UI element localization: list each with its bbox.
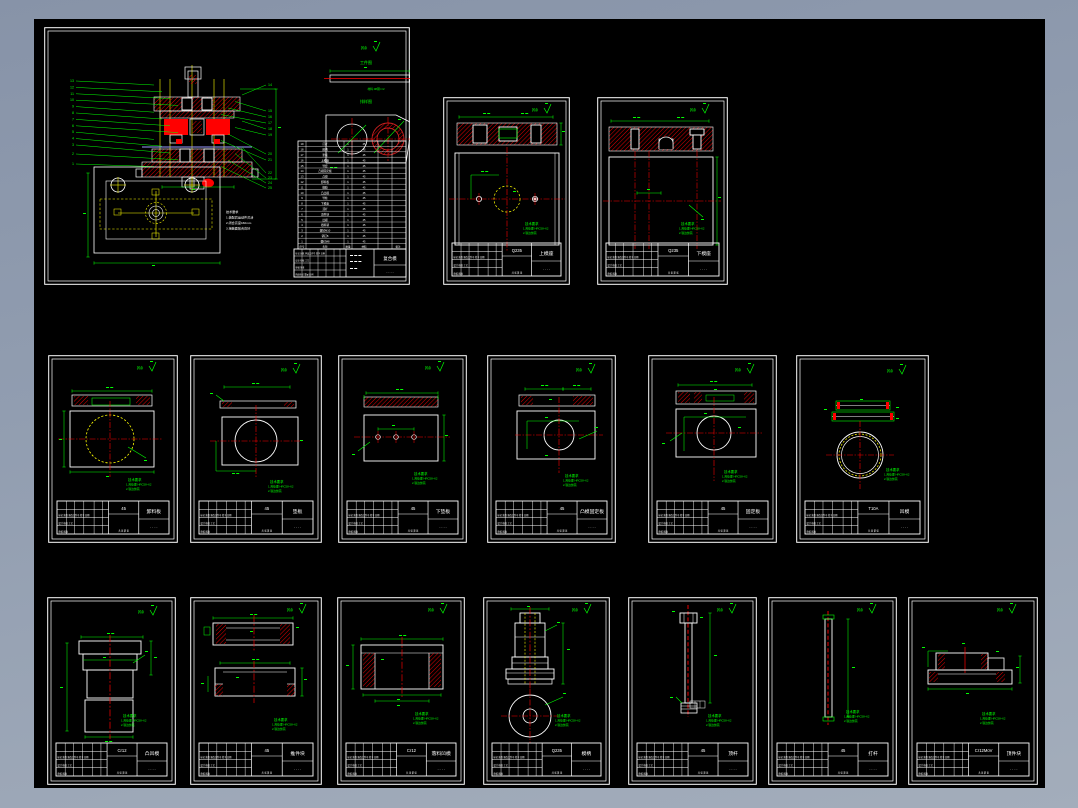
bom-header: 备注 xyxy=(395,245,401,249)
drawing-sheet-assembly: 1312111098765432114151617181920212223242… xyxy=(44,27,410,285)
bom-qty: 1 xyxy=(347,207,349,211)
roughness-label: 其余 xyxy=(735,367,742,372)
drawing-sheet-upper-die-seat: 技术要求1.热处理 HRC58~622.锐边倒钝其余标记 处数 更改文件号 签字… xyxy=(443,97,570,285)
title-block: 标记 处数 更改文件号 签字 日期设计 校核 工艺审核 批准Cr12MoV共 张… xyxy=(917,743,1029,776)
sheet-note: 共 张 第 张 xyxy=(118,529,129,533)
bom-no: 2 xyxy=(301,234,303,238)
balloon-number: 17 xyxy=(268,121,272,125)
notes-line: 1.热处理 HRC58~62 xyxy=(844,715,870,719)
sheet-content: 技术要求1.热处理 HRC58~622.锐边倒钝其余标记 处数 更改文件号 签字… xyxy=(484,598,610,785)
part-name-label: 落料凹模 xyxy=(432,750,451,757)
assembly-section-view xyxy=(136,65,281,190)
roughness-icon: 其余 xyxy=(361,41,380,51)
notes-line: 2.锐边倒钝 xyxy=(413,721,427,725)
bom-no: 8 xyxy=(301,202,303,206)
roughness-label: 其余 xyxy=(425,365,432,370)
titleblock-row: 审核 批准 xyxy=(494,771,504,775)
part-name-label: 下模座 xyxy=(697,250,712,257)
notes-line: 1.热处理 HRC58~62 xyxy=(555,719,581,723)
titleblock-row: 审核 批准 xyxy=(498,529,508,533)
section-view xyxy=(676,381,756,404)
bom-no: 3 xyxy=(301,229,303,233)
drawing-sheet-knockout-rod: 技术要求1.热处理 HRC58~622.锐边倒钝其余标记 处数 更改文件号 签字… xyxy=(768,597,897,785)
notes-line: 2.锐边倒钝 xyxy=(884,477,898,481)
notes-line: 1.热处理 HRC58~62 xyxy=(413,717,439,721)
sheet-content: 1312111098765432114151617181920212223242… xyxy=(45,28,410,285)
titleblock-row: 审核 批准 xyxy=(296,266,305,270)
bom-no: 15 xyxy=(301,164,304,168)
drawing-number-dots: · · · · xyxy=(439,526,446,530)
notes-line: 1.热处理 HRC58~62 xyxy=(121,719,147,723)
rod-view xyxy=(670,605,717,717)
bom-no: 1 xyxy=(301,239,303,243)
plan-view xyxy=(662,397,762,481)
balloon-number: 23 xyxy=(268,176,272,180)
titleblock-row: 审核 批准 xyxy=(59,529,69,533)
part-name-label: 复合模 xyxy=(383,255,397,262)
roughness-label: 其余 xyxy=(887,368,894,373)
bom-name: 螺钉M10 xyxy=(320,229,331,233)
roughness-label: 其余 xyxy=(572,607,579,612)
drawing-number-dots: · · · · xyxy=(294,526,301,530)
bom-no: 18 xyxy=(301,148,304,152)
part-name-label: 凸模固定板 xyxy=(580,508,604,515)
tech-notes: 技术要求1.热处理 HRC58~622.锐边倒钝 xyxy=(722,469,748,483)
balloon-number: 11 xyxy=(70,92,74,96)
titleblock-row: 设计 校核 工艺 xyxy=(608,263,623,267)
bom-qty: 1 xyxy=(347,164,349,168)
plan-view xyxy=(58,401,162,477)
section-view xyxy=(364,389,438,407)
tech-notes: 技术要求1.热处理 HRC58~622.锐边倒钝 xyxy=(413,711,439,725)
bom-table: 19打杆14518模柄14517垫板14516上模座14515导套14514凸模… xyxy=(298,141,406,249)
bom-no: 17 xyxy=(301,153,304,157)
plan-view xyxy=(603,151,721,249)
balloon-number: 21 xyxy=(268,158,272,162)
drawing-sheet-ejector-rod: 技术要求1.热处理 HRC58~622.锐边倒钝其余标记 处数 更改文件号 签字… xyxy=(628,597,757,785)
notes-title: 技术要求 xyxy=(123,713,137,718)
drawing-number-dots: · · · · xyxy=(700,268,707,272)
balloon-number: 1 xyxy=(72,162,74,166)
titleblock-row: 标记 处数 更改文件号 签字 日期 xyxy=(454,255,486,259)
bom-material: 45 xyxy=(363,197,366,200)
sheet-note: 共 张 第 张 xyxy=(978,771,989,775)
bom-qty: 1 xyxy=(347,239,349,243)
sheet-content: 技术要求1.热处理 HRC58~622.锐边倒钝其余标记 处数 更改文件号 签字… xyxy=(649,356,777,543)
part-name-label: 凹模 xyxy=(900,508,910,515)
notes-line: 2.锐边倒钝 xyxy=(121,723,135,727)
notes-line: 1.热处理 HRC58~62 xyxy=(706,719,732,723)
balloon-number: 2 xyxy=(72,152,74,156)
bom-name: 橡胶 xyxy=(322,185,328,189)
section-view xyxy=(72,387,152,406)
roughness-label: 其余 xyxy=(361,45,368,50)
sheet-content: 技术要求1.热处理 HRC58~622.锐边倒钝其余标记 处数 更改文件号 签字… xyxy=(909,598,1038,785)
balloon-number: 5 xyxy=(72,130,74,134)
roughness-icon: 其余 xyxy=(887,364,906,374)
drawing-sheet-die-ring: 技术要求1.热处理 HRC58~622.锐边倒钝其余标记 处数 更改文件号 签字… xyxy=(796,355,929,543)
notes-title: 技术要求 xyxy=(982,711,996,716)
plan-view xyxy=(83,167,220,266)
material-label: 45 xyxy=(841,748,846,753)
part-name-label: 凸凹模 xyxy=(145,750,160,757)
material-label: T10A xyxy=(868,506,878,511)
notes-line: 1.热处理 HRC58~62 xyxy=(980,717,1006,721)
roughness-label: 其余 xyxy=(137,365,144,370)
roughness-icon: 其余 xyxy=(425,361,444,371)
title-block: 标记 处数 更改文件号 签字 日期设计 校核 工艺审核 批准45共 张 第 张凸… xyxy=(496,501,607,534)
notes-line: 2.锐边倒钝 xyxy=(555,723,569,727)
notes-title: 技术要求 xyxy=(708,713,722,718)
roughness-label: 其余 xyxy=(690,107,697,112)
drawing-sheet-punch-fixing-plate: 技术要求1.热处理 HRC58~622.锐边倒钝其余标记 处数 更改文件号 签字… xyxy=(487,355,616,543)
part-name-label: 下垫板 xyxy=(436,508,451,515)
material-label: Q235 xyxy=(512,248,523,253)
roughness-label: 其余 xyxy=(717,607,724,612)
notes-title: 技术要求 xyxy=(846,709,860,714)
notes-title: 技术要求 xyxy=(270,479,284,484)
roughness-icon: 其余 xyxy=(137,361,156,371)
tech-notes: 技术要求1.热处理 HRC58~622.锐边倒钝 xyxy=(844,709,870,723)
bom-qty: 1 xyxy=(347,202,349,206)
bom-no: 10 xyxy=(301,191,304,195)
balloon-number: 6 xyxy=(72,124,74,128)
bom-no: 5 xyxy=(301,218,303,222)
notes-line: 2.锐边倒钝 xyxy=(126,487,140,491)
plan-view xyxy=(352,415,450,461)
balloon-number: 12 xyxy=(70,85,74,89)
title-block: 标记 处数 更改文件号 签字 日期设计 校核 工艺审核 批准45共 张 第 张垫… xyxy=(199,501,313,534)
sheet-content: 技术要求1.热处理 HRC58~622.锐边倒钝其余标记 处数 更改文件号 签字… xyxy=(769,598,897,785)
titleblock-row: 标记 处数 更改文件号 签字 日期 xyxy=(201,755,233,759)
drawing-sheet-ejector-block: 技术要求1.热处理 HRC58~622.锐边倒钝其余标记 处数 更改文件号 签字… xyxy=(190,597,322,785)
bom-qty: 1 xyxy=(347,196,349,200)
notes-line: 2.锐边倒钝 xyxy=(268,489,282,493)
balloon-number: 16 xyxy=(268,115,272,119)
titleblock-row: 阶段标记 重量 比例 xyxy=(296,273,314,277)
bom-name: 凸模 xyxy=(322,175,328,179)
title-block: 标记 处数 更改文件号 签字 日期设计 校核 工艺审核 批准Cr12共 张 第 … xyxy=(56,743,167,776)
titleblock-row: 审核 批准 xyxy=(201,529,211,533)
lower-section-view xyxy=(201,659,307,703)
drawing-sheet-upper-pad-plate: 技术要求1.热处理 HRC58~622.锐边倒钝其余标记 处数 更改文件号 签字… xyxy=(190,355,322,543)
sheet-content: 技术要求1.热处理 HRC58~622.锐边倒钝其余标记 处数 更改文件号 签字… xyxy=(629,598,757,785)
bom-material: 45 xyxy=(363,159,366,162)
tech-notes: 技术要求1.热处理 HRC58~622.锐边倒钝 xyxy=(412,471,438,485)
notes-title: 技术要求 xyxy=(274,717,288,722)
balloon-number: 7 xyxy=(72,117,74,121)
bom-material: 45 xyxy=(363,208,366,211)
bom-name: 凸模固定板 xyxy=(318,169,332,173)
sheet-note: 共 张 第 张 xyxy=(262,771,273,775)
bom-name: 下模座 xyxy=(321,202,329,206)
notes-line: 2.锐边倒钝 xyxy=(412,481,426,485)
bom-name: 导套 xyxy=(322,164,328,168)
bom-name: 卸料板 xyxy=(321,180,329,184)
bom-name: 销钉8 xyxy=(322,234,329,238)
balloon-number: 4 xyxy=(72,137,74,141)
drawing-number-dots: · · · · xyxy=(386,271,393,275)
notes-line: 2.锐边倒钝 xyxy=(272,727,286,731)
notes-title: 技术要求 xyxy=(415,711,429,716)
notes-line: 2.锐边倒钝 xyxy=(706,723,720,727)
notes-line: 1.热处理 HRC58~62 xyxy=(722,475,748,479)
part-name-label: 上模座 xyxy=(539,250,554,257)
drawing-number-dots: · · · · xyxy=(588,526,595,530)
assembly-tech-notes: 技术要求1.装配后运动件灵活2.闭合高度160mm3.接触面贴合良好 xyxy=(226,209,253,231)
section-view xyxy=(210,383,296,408)
drawing-number-dots: · · · · xyxy=(869,768,876,772)
drawing-sheet-die-shank: 技术要求1.热处理 HRC58~622.锐边倒钝其余标记 处数 更改文件号 签字… xyxy=(483,597,610,785)
notes-title: 技术要求 xyxy=(886,467,900,472)
balloon-number: 19 xyxy=(268,133,272,137)
bom-header: 名称 xyxy=(322,245,328,249)
bom-qty: 1 xyxy=(347,175,349,179)
shank-profile-view xyxy=(506,606,570,689)
title-block: 标记 处数 更改文件号 签字 日期设计 校核 工艺审核 批准45共 张 第 张顶… xyxy=(637,743,748,776)
material-label: 45 xyxy=(264,506,269,511)
title-block: 标记 处数 更改文件号 签字 日期设计 校核 工艺审核 批准Q235共 张 第 … xyxy=(452,243,561,276)
drawing-sheet-locating-flange: 技术要求1.热处理 HRC58~622.锐边倒钝其余标记 处数 更改文件号 签字… xyxy=(908,597,1038,785)
bom-material: 45 xyxy=(363,186,366,189)
titleblock-row: 设计 校核 工艺 xyxy=(807,521,822,525)
notes-line: 1.热处理 HRC58~62 xyxy=(268,485,294,489)
bom-no: 4 xyxy=(301,223,303,227)
titleblock-row: 审核 批准 xyxy=(919,771,929,775)
bom-material: 45 xyxy=(363,224,366,227)
titleblock-row: 审核 批准 xyxy=(639,771,649,775)
roughness-icon: 其余 xyxy=(572,603,591,613)
bom-material: 45 xyxy=(363,170,366,173)
titleblock-row: 设计 校核 工艺 xyxy=(201,763,216,767)
bom-qty: 1 xyxy=(347,169,349,173)
drawing-number-dots: · · · · xyxy=(148,768,155,772)
sheet-content: 技术要求1.热处理 HRC58~622.锐边倒钝其余标记 处数 更改文件号 签字… xyxy=(338,598,465,785)
part-name-label: 卸料板 xyxy=(147,508,162,515)
cad-preview-stage: 1312111098765432114151617181920212223242… xyxy=(0,0,1078,808)
drawing-number-dots: · · · · xyxy=(583,768,590,772)
section-view xyxy=(519,385,595,406)
sheet-note: 共 张 第 张 xyxy=(718,529,729,533)
sheet-note: 共 张 第 张 xyxy=(868,529,879,533)
sheet-content: 技术要求1.热处理 HRC58~622.锐边倒钝其余标记 处数 更改文件号 签字… xyxy=(488,356,616,543)
roughness-label: 其余 xyxy=(997,607,1004,612)
titleblock-row: 审核 批准 xyxy=(659,529,669,533)
section-view xyxy=(824,399,899,421)
drawing-sheet-blanking-die: 技术要求1.热处理 HRC58~622.锐边倒钝其余标记 处数 更改文件号 签字… xyxy=(337,597,465,785)
sheet-note: 共 张 第 张 xyxy=(557,529,568,533)
titleblock-row: 标记 处数 更改文件号 签字 日期 xyxy=(807,513,839,517)
drawing-number-dots: · · · · xyxy=(901,526,908,530)
drawing-number-dots: · · · · xyxy=(1010,768,1017,772)
material-label: 45 xyxy=(121,506,126,511)
material-note: 材料:08钢 t=2 xyxy=(367,87,384,91)
notes-line: 2.锐边倒钝 xyxy=(523,231,537,235)
material-label: Q235 xyxy=(552,748,563,753)
bom-material: 45 xyxy=(363,154,366,157)
notes-line: 2.锐边倒钝 xyxy=(980,721,994,725)
bom-name: 上模座 xyxy=(321,158,329,162)
notes-line: 2.锐边倒钝 xyxy=(679,231,693,235)
bom-material: 45 xyxy=(363,165,366,168)
titleblock-row: 设计 校核 工艺 xyxy=(296,259,310,263)
roughness-label: 其余 xyxy=(576,367,583,372)
titleblock-row: 标记 处数 更改文件号 签字 日期 xyxy=(201,513,233,517)
sheet-content: 技术要求1.热处理 HRC58~622.锐边倒钝其余标记 处数 更改文件号 签字… xyxy=(339,356,467,543)
bom-no: 12 xyxy=(301,180,304,184)
tech-notes: 技术要求1.热处理 HRC58~622.锐边倒钝 xyxy=(126,477,152,491)
drawing-sheet-die-fixing-plate: 技术要求1.热处理 HRC58~622.锐边倒钝其余标记 处数 更改文件号 签字… xyxy=(648,355,777,543)
bom-name: 垫板 xyxy=(322,153,328,157)
model-space: 1312111098765432114151617181920212223242… xyxy=(34,19,1045,788)
title-block: 标记 处数 更改文件号 签字 日期设计 校核 工艺审核 批准45共 张 第 张推… xyxy=(199,743,313,776)
tech-notes: 技术要求1.热处理 HRC58~622.锐边倒钝 xyxy=(706,713,732,727)
bom-name: 模柄 xyxy=(322,148,328,152)
roughness-icon: 其余 xyxy=(997,603,1016,613)
roughness-label: 其余 xyxy=(428,607,435,612)
bom-qty: 1 xyxy=(347,148,349,152)
bom-material: 45 xyxy=(363,230,366,233)
tech-note-line: 2.闭合高度160mm xyxy=(226,220,252,225)
bom-name: 螺钉M8 xyxy=(320,239,330,243)
bom-qty: 1 xyxy=(347,158,349,162)
titleblock-row: 审核 批准 xyxy=(348,771,358,775)
material-label: Q235 xyxy=(668,248,679,253)
bom-no: 6 xyxy=(301,212,303,216)
title-block: 标记 处数 更改文件号 签字 日期设计 校核 工艺审核 批准45共 张 第 张打… xyxy=(777,743,888,776)
sheet-note: 共 张 第 张 xyxy=(552,771,563,775)
part-name-label: 模柄 xyxy=(581,750,591,757)
roughness-icon: 其余 xyxy=(717,603,736,613)
bom-name: 导柱 xyxy=(322,196,328,200)
roughness-icon: 其余 xyxy=(857,603,876,613)
drawing-number-dots: · · · · xyxy=(294,768,301,772)
bom-qty: 1 xyxy=(347,142,349,146)
notes-title: 技术要求 xyxy=(557,713,571,718)
view-label: 工件图 xyxy=(360,59,372,65)
notes-title: 技术要求 xyxy=(128,477,142,482)
bom-material: 45 xyxy=(363,149,366,152)
notes-line: 1.热处理 HRC58~62 xyxy=(679,227,705,231)
material-label: Cr12 xyxy=(118,748,128,753)
titleblock-row: 审核 批准 xyxy=(608,271,618,275)
drawing-number-dots: · · · · xyxy=(749,526,756,530)
bom-material: 45 xyxy=(363,192,366,195)
notes-line: 1.热处理 HRC58~62 xyxy=(563,479,589,483)
title-block: 标记 处数 更改文件号 签字 日期设计 校核 工艺审核 批准Cr12共 张 第 … xyxy=(346,743,456,776)
bom-name: 凹模 xyxy=(322,218,328,222)
roughness-icon: 其余 xyxy=(138,605,157,615)
bom-material: 45 xyxy=(363,240,366,243)
part-name-label: 垫板 xyxy=(293,508,303,515)
balloon-number: 9 xyxy=(72,105,74,109)
balloon-number: 10 xyxy=(70,98,74,102)
bom-qty: 1 xyxy=(347,180,349,184)
drawing-sheet-stripper-plate: 技术要求1.热处理 HRC58~622.锐边倒钝其余标记 处数 更改文件号 签字… xyxy=(48,355,178,543)
part-name-label: 顶件块 xyxy=(1007,750,1022,757)
bom-material: 45 xyxy=(363,181,366,184)
balloon-number: 14 xyxy=(268,83,272,87)
tech-note-line: 技术要求 xyxy=(226,209,238,214)
roughness-label: 其余 xyxy=(532,107,539,112)
material-label: 45 xyxy=(560,506,565,511)
title-block: 标记 处数 更改文件号 签字 日期设计 校核 工艺审核 批准T10A共 张 第 … xyxy=(805,501,920,534)
plan-view xyxy=(515,397,603,473)
bom-header: 材料 xyxy=(361,245,367,249)
material-label: Cr12 xyxy=(407,748,417,753)
notes-line: 1.热处理 HRC58~62 xyxy=(412,477,438,481)
roughness-icon: 其余 xyxy=(532,103,551,113)
sheet-content: 技术要求1.热处理 HRC58~622.锐边倒钝其余标记 处数 更改文件号 签字… xyxy=(191,598,322,785)
sheet-note: 共 张 第 张 xyxy=(262,529,273,533)
tech-notes: 技术要求1.热处理 HRC58~622.锐边倒钝 xyxy=(563,473,589,487)
title-block: 标记 处数 更改文件号 签字 日期设计 校核 工艺审核 批准45共 张 第 张下… xyxy=(347,501,458,534)
plan-view xyxy=(449,147,565,251)
titleblock-row: 标记 处数 更改文件号 签字 日期 xyxy=(608,255,640,259)
section-view xyxy=(609,117,713,151)
drawing-number-dots: · · · · xyxy=(543,268,550,272)
notes-line: 1.热处理 HRC58~62 xyxy=(126,483,152,487)
titleblock-row: 设计 校核 工艺 xyxy=(201,521,216,525)
title-block: 标记 处数 更改文件号 签字 日期设计 校核 工艺审核 批准45共 张 第 张卸… xyxy=(57,501,169,534)
bom-qty: 1 xyxy=(347,218,349,222)
section-view xyxy=(457,113,565,145)
material-label: 45 xyxy=(264,748,269,753)
bom-material: 45 xyxy=(363,213,366,216)
bom-material: 45 xyxy=(363,235,366,238)
bom-qty: 1 xyxy=(347,191,349,195)
part-name-label: 打杆 xyxy=(868,750,878,757)
sheet-note: 共 张 第 张 xyxy=(838,771,849,775)
bom-name: 挡料销 xyxy=(321,223,329,227)
part-name-label: 固定板 xyxy=(746,508,761,515)
notes-title: 技术要求 xyxy=(724,469,738,474)
balloon-number: 15 xyxy=(268,109,272,113)
roughness-icon: 其余 xyxy=(576,363,595,373)
bom-no: 7 xyxy=(301,207,303,211)
bom-no: 16 xyxy=(301,158,304,162)
plan-view xyxy=(210,405,303,477)
upper-section-view xyxy=(204,614,299,651)
bom-material: 45 xyxy=(363,176,366,179)
sheet-note: 共 张 第 张 xyxy=(408,529,419,533)
sheet-note: 共 张 第 张 xyxy=(668,271,679,275)
tech-notes: 技术要求1.热处理 HRC58~622.锐边倒钝 xyxy=(523,221,549,235)
material-label: Cr12MoV xyxy=(975,748,993,753)
balloon-number: 3 xyxy=(72,143,74,147)
balloon-number: 13 xyxy=(70,79,74,83)
bom-qty: 1 xyxy=(347,223,349,227)
bom-name: 凸凹模 xyxy=(321,191,329,195)
part-name-label: 推件块 xyxy=(290,750,305,757)
bom-name: 顶杆 xyxy=(322,207,328,211)
sheet-content: 技术要求1.热处理 HRC58~622.锐边倒钝其余标记 处数 更改文件号 签字… xyxy=(797,356,929,543)
drawing-number-dots: · · · · xyxy=(150,526,157,530)
drawing-number-dots: · · · · xyxy=(437,768,444,772)
sheet-note: 共 张 第 张 xyxy=(698,771,709,775)
title-block: 标记 处数 更改文件号 签字 日期设计 校核 工艺审核 批准Q235共 张 第 … xyxy=(492,743,601,776)
tech-note-line: 1.装配后运动件灵活 xyxy=(226,215,253,220)
roughness-icon: 其余 xyxy=(428,603,447,613)
titleblock-row: 审核 批准 xyxy=(779,771,789,775)
material-label: 45 xyxy=(721,506,726,511)
sheet-note: 共 张 第 张 xyxy=(406,771,417,775)
bom-no: 14 xyxy=(301,169,304,173)
title-block: 标记 处数 更改文件号 签字 日期设计 校核 工艺审核 批准45共 张 第 张固… xyxy=(657,501,768,534)
bom-qty: 1 xyxy=(347,185,349,189)
notes-line: 1.热处理 HRC58~62 xyxy=(272,723,298,727)
sheet-note: 共 张 第 张 xyxy=(117,771,128,775)
